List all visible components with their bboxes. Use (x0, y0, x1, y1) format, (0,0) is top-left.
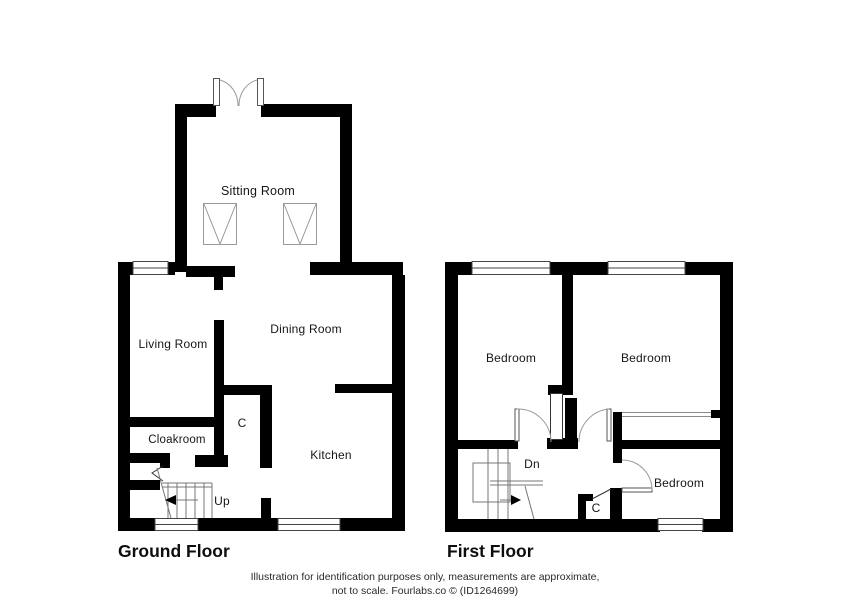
landing-cupboard (551, 394, 563, 440)
floorplan-canvas (0, 0, 850, 614)
room-label-cloakroom: Cloakroom (148, 434, 205, 446)
ground-windows (133, 262, 340, 531)
first-closet-door-leaf (592, 489, 611, 499)
sitting-room-window-symbols (204, 204, 317, 245)
room-label-bedroom-right: Bedroom (621, 351, 671, 365)
room-label-sitting-room: Sitting Room (221, 184, 295, 198)
first-windows (472, 262, 703, 531)
stairs-down-label: Dn (524, 457, 540, 471)
room-label-bedroom-left: Bedroom (486, 351, 536, 365)
ground-floor-plan (118, 79, 405, 532)
ground-stairs (157, 468, 212, 518)
french-doors (214, 79, 264, 107)
wardrobe-line (622, 413, 711, 417)
room-label-dining-room: Dining Room (270, 322, 342, 336)
floorplan-page: Sitting Room Living Room Dining Room Clo… (0, 0, 850, 614)
disclaimer-line-1: Illustration for identification purposes… (0, 570, 850, 584)
room-label-kitchen: Kitchen (310, 448, 351, 462)
first-floor-plan (445, 262, 733, 533)
room-label-ground-closet: C (238, 416, 247, 430)
room-label-living-room: Living Room (139, 337, 208, 351)
stairs-down-arrow (511, 495, 521, 505)
first-floor-title: First Floor (447, 541, 534, 562)
disclaimer: Illustration for identification purposes… (0, 570, 850, 598)
room-label-bedroom-bottom: Bedroom (654, 476, 704, 490)
disclaimer-line-2: not to scale. Fourlabs.co © (ID1264699) (0, 584, 850, 598)
ground-floor-title: Ground Floor (118, 541, 230, 562)
stairs-up-label: Up (214, 494, 230, 508)
room-label-first-closet: C (592, 501, 601, 515)
